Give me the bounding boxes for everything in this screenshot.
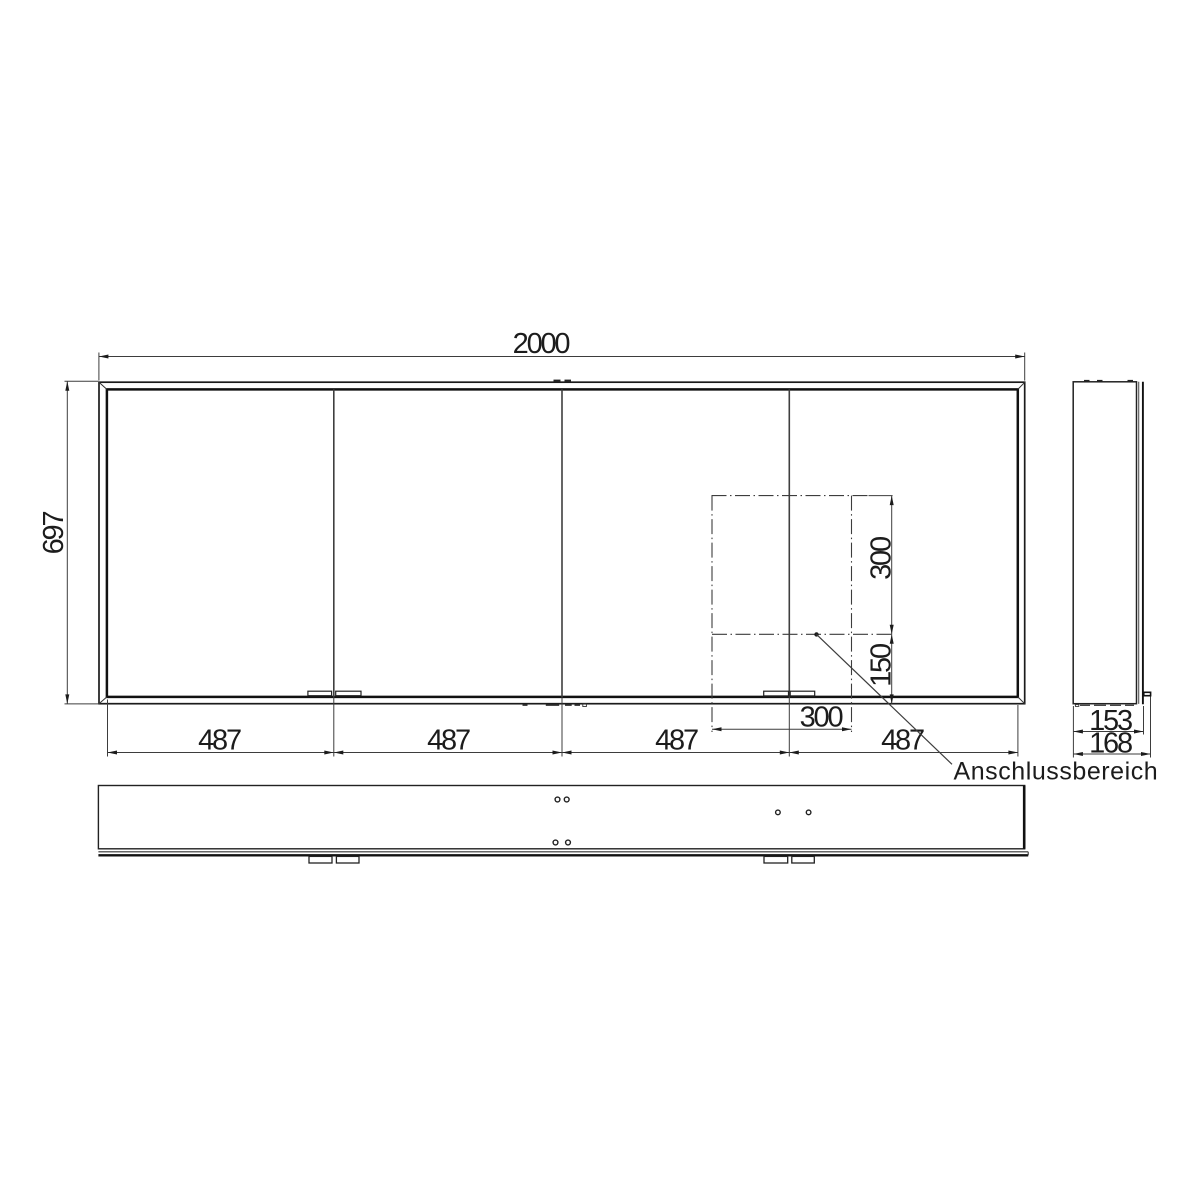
svg-text:300: 300 bbox=[866, 537, 898, 580]
svg-text:487: 487 bbox=[198, 725, 241, 757]
svg-text:487: 487 bbox=[881, 725, 924, 757]
svg-text:168: 168 bbox=[1089, 728, 1132, 760]
svg-text:487: 487 bbox=[427, 725, 470, 757]
svg-text:150: 150 bbox=[866, 644, 898, 687]
svg-text:697: 697 bbox=[38, 512, 70, 555]
svg-text:300: 300 bbox=[800, 701, 843, 733]
svg-text:487: 487 bbox=[655, 725, 698, 757]
svg-text:2000: 2000 bbox=[513, 328, 570, 360]
svg-text:Anschlussbereich: Anschlussbereich bbox=[954, 758, 1159, 786]
